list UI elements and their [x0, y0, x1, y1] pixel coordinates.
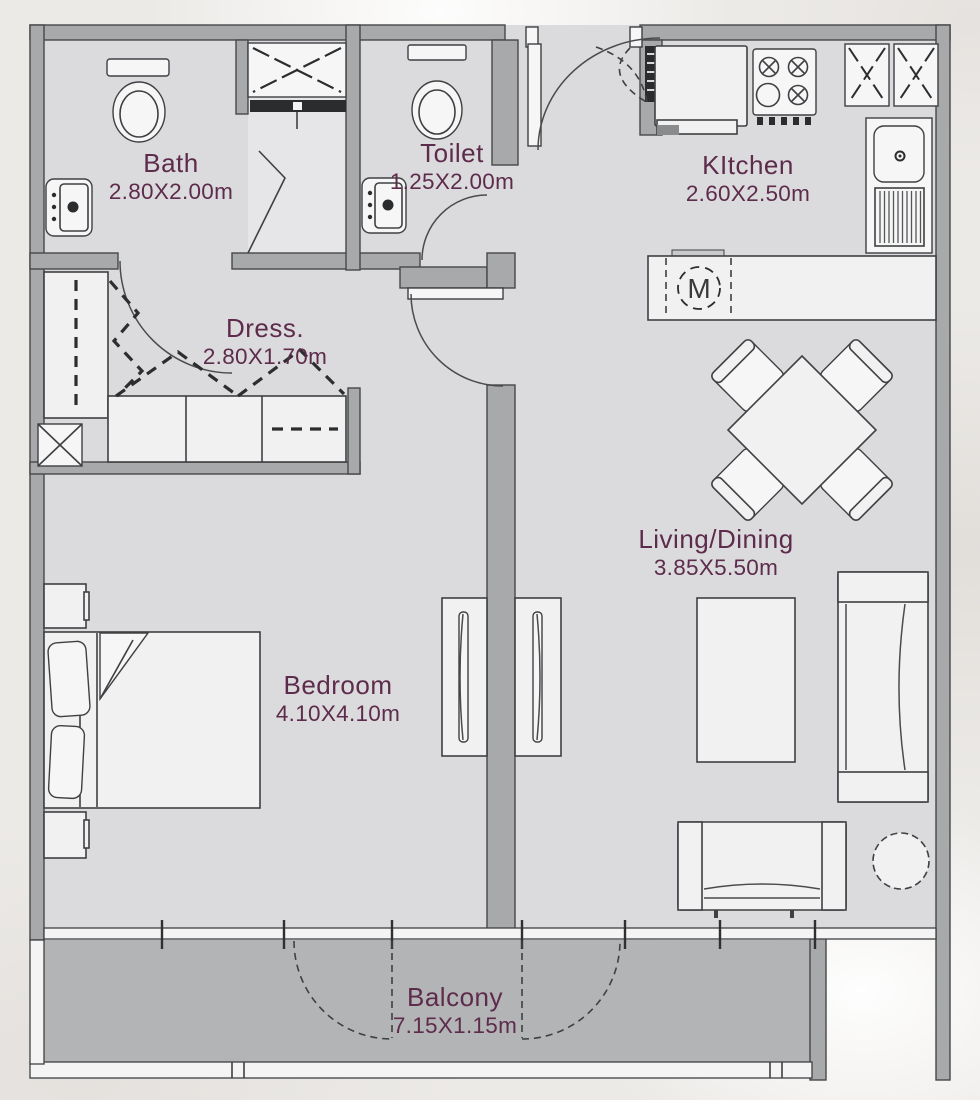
- toilet-fixture: [113, 82, 165, 142]
- room-dimensions: 1.25X2.00m: [390, 168, 514, 196]
- room-label-kitchen: KItchen 2.60X2.50m: [686, 150, 810, 208]
- nightstand: [44, 584, 89, 628]
- room-label-balcony: Balcony 7.15X1.15m: [393, 982, 517, 1040]
- room-label-bedroom: Bedroom 4.10X4.10m: [276, 670, 400, 728]
- room-name: Toilet: [390, 138, 514, 168]
- toilet-fixture: [412, 81, 462, 139]
- cistern-shelf: [408, 45, 466, 60]
- coffee-table: [697, 598, 795, 762]
- floor-plan-page: M: [0, 0, 980, 1100]
- room-dimensions: 7.15X1.15m: [393, 1012, 517, 1040]
- room-name: KItchen: [686, 150, 810, 180]
- room-label-dress: Dress. 2.80X1.70m: [203, 313, 327, 371]
- room-label-toilet: Toilet 1.25X2.00m: [390, 138, 514, 196]
- room-dimensions: 2.60X2.50m: [686, 180, 810, 208]
- room-dimensions: 3.85X5.50m: [638, 554, 793, 582]
- wardrobe: [515, 598, 561, 756]
- bed: [44, 632, 260, 808]
- room-dimensions: 2.80X1.70m: [203, 343, 327, 371]
- nightstand: [44, 812, 89, 858]
- kitchen-sink: [866, 118, 932, 253]
- washing-machine-counter: M: [648, 250, 936, 320]
- room-label-living-dining: Living/Dining 3.85X5.50m: [638, 524, 793, 582]
- washing-machine-label: M: [687, 273, 710, 304]
- room-label-bath: Bath 2.80X2.00m: [109, 148, 233, 206]
- room-dimensions: 4.10X4.10m: [276, 700, 400, 728]
- room-name: Dress.: [203, 313, 327, 343]
- room-name: Living/Dining: [638, 524, 793, 554]
- sofa-right: [838, 572, 928, 802]
- room-name: Bedroom: [276, 670, 400, 700]
- round-side-table: [873, 833, 929, 889]
- duct-box: [38, 424, 82, 466]
- fridge: [655, 46, 747, 135]
- room-dimensions: 2.80X2.00m: [109, 178, 233, 206]
- room-name: Balcony: [393, 982, 517, 1012]
- sofa-bottom: [678, 822, 846, 918]
- room-name: Bath: [109, 148, 233, 178]
- bath-shelf: [107, 59, 169, 76]
- closet-bottom-row: [108, 396, 346, 462]
- wardrobe: [442, 598, 487, 756]
- stove: [753, 49, 816, 125]
- washbasin: [46, 179, 92, 236]
